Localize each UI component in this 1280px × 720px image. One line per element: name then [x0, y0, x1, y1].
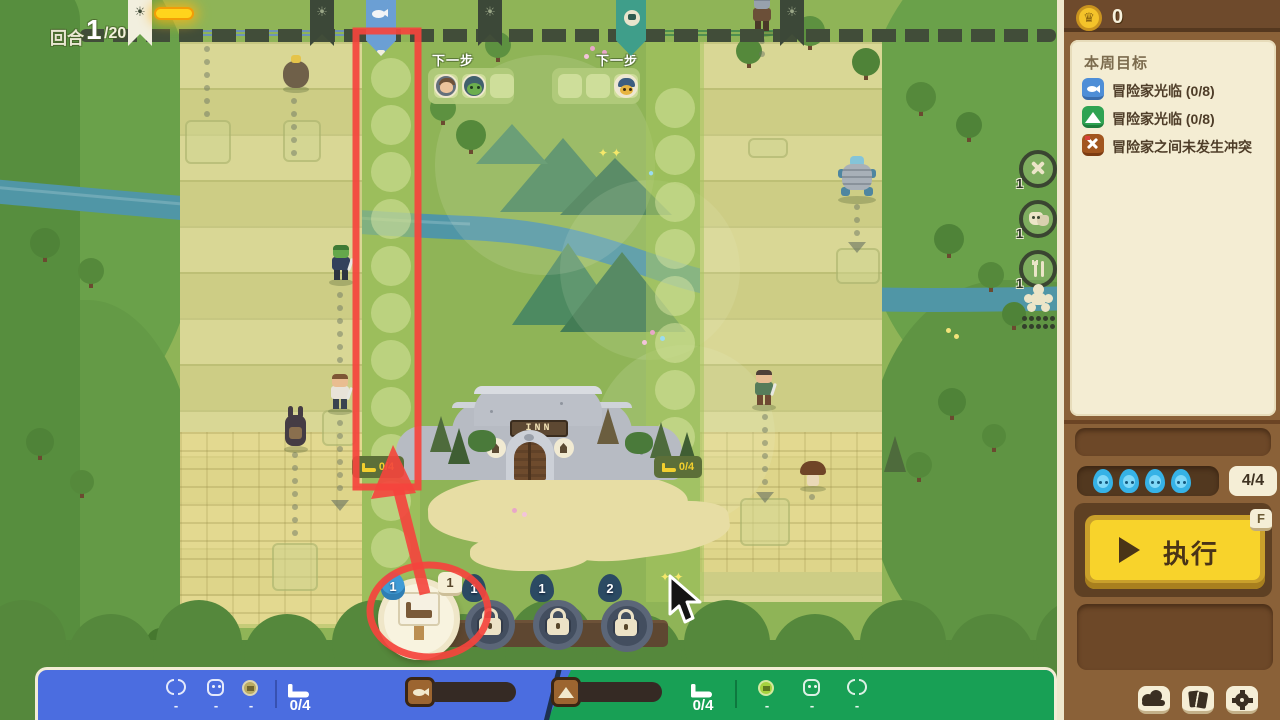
path-dot [292, 530, 298, 536]
turn-label: 回合 [50, 24, 84, 49]
path-arrow-icon [331, 500, 349, 511]
lock-icon [479, 618, 501, 635]
mountain-icon [558, 687, 574, 698]
goal-label: 冒险家光临 (0/8) [1112, 109, 1215, 129]
path-dot [337, 305, 343, 311]
path-dot [337, 331, 343, 337]
lane-cell[interactable] [371, 199, 411, 239]
inn-capacity-badge-left: 0/4 [352, 456, 404, 478]
path-dot [337, 420, 343, 426]
execute-label: 执行 [1163, 534, 1219, 571]
card-locked-3-cost: 2 [598, 574, 622, 602]
slot-tray-bottom [1077, 604, 1273, 670]
fish-tail-icon [382, 9, 388, 17]
medal-value-left: - [239, 698, 263, 713]
path-dot [854, 204, 860, 210]
inn-capacity-badge-right: 0/4 [654, 456, 702, 478]
cards-button[interactable] [1182, 686, 1214, 714]
game-screen: INN ✦ ✦ ● ✦ ✦ 0/4 0/4 下一步 [0, 0, 1280, 720]
path-dot [337, 292, 343, 298]
flower [650, 330, 655, 335]
goal-item: 冒险家光临 (0/8) [1082, 78, 1268, 102]
timeline-progress-pill [154, 7, 194, 20]
mushroom-guest [800, 461, 840, 507]
goals-title: 本周目标 [1084, 52, 1148, 73]
path-dot [291, 124, 297, 130]
tree-icon [906, 82, 936, 112]
grid-dot [1029, 324, 1034, 329]
path-dot [337, 459, 343, 465]
bush-icon [625, 432, 653, 454]
sparkle: ✦ ✦ [598, 146, 621, 160]
flame-icon [1093, 469, 1113, 493]
skull-value-right: - [800, 698, 824, 713]
play-icon [1119, 537, 1140, 563]
sparkle: ● [648, 168, 654, 179]
tree-icon [978, 262, 1004, 288]
queue-portrait-frog [462, 74, 486, 98]
path-dot [337, 433, 343, 439]
grid-dot [1029, 316, 1034, 321]
path-dot [291, 137, 297, 143]
flame-icon [1119, 469, 1139, 493]
laurel-value-right: - [845, 698, 869, 713]
path-arrow-icon [848, 242, 866, 253]
path-dot [854, 217, 860, 223]
path-dot [292, 491, 298, 497]
tree-icon [30, 228, 60, 258]
skull-value-left: - [204, 698, 228, 713]
queue-right-label: 下一步 [552, 50, 638, 69]
turtle-guest [838, 156, 878, 202]
lane-cell[interactable] [371, 246, 411, 286]
path-arrow-icon [756, 492, 774, 503]
grid-dot [1043, 324, 1048, 329]
sidebar: ♛ 0 本周目标 冒险家光临 (0/8) 冒险家光临 (0/8) [1057, 0, 1280, 720]
laurel-icon [166, 679, 174, 695]
lane-cell[interactable] [655, 182, 695, 222]
keyhole [624, 624, 628, 630]
tree-icon [982, 424, 1006, 448]
map: INN ✦ ✦ ● ✦ ✦ 0/4 0/4 下一步 [0, 0, 1063, 720]
path-dot [292, 517, 298, 523]
meeple-icon[interactable] [1024, 284, 1052, 312]
path-dot [292, 465, 298, 471]
keys-tool-button[interactable] [1019, 150, 1057, 188]
path-dot [291, 111, 297, 117]
hotkey-badge: F [1250, 509, 1272, 531]
bed-counter-left: 0/4 [281, 697, 319, 714]
queue-portrait-man [434, 74, 458, 98]
mountain-badge [551, 677, 581, 707]
path-dot [204, 72, 210, 78]
path-dot [762, 453, 768, 459]
tree-icon [852, 48, 880, 76]
tree-icon [934, 224, 964, 254]
owl-guest [283, 54, 323, 100]
lane-cell[interactable] [371, 387, 411, 427]
currency-value: 0 [1112, 6, 1123, 29]
flower [512, 508, 517, 513]
tree-icon [78, 258, 104, 284]
skull-icon [207, 679, 224, 696]
grid-dot [1022, 316, 1027, 321]
action-panel: 4/4 执行 F [1064, 420, 1280, 720]
utensils-icon [1034, 261, 1037, 277]
plaza-left [180, 432, 362, 628]
plot-square [740, 498, 790, 546]
goal-label: 冒险家之间未发生冲突 [1112, 137, 1252, 157]
card-bed-count-badge: 1 [438, 572, 462, 596]
bottom-status-bar: - - - 0/4 0/4 - [35, 667, 1057, 720]
utensils-tool-button[interactable] [1019, 250, 1057, 288]
inn-door [514, 442, 546, 480]
path-dot [337, 357, 343, 363]
plot-square [283, 120, 321, 162]
flower [946, 328, 951, 333]
laurel-value-left: - [164, 698, 188, 713]
mountain-shield-icon [1082, 106, 1104, 128]
grid-dot [1036, 316, 1041, 321]
path-dot [762, 427, 768, 433]
turn-value: 1 [86, 14, 102, 46]
lane-cell[interactable] [371, 105, 411, 145]
lane-cell[interactable] [371, 58, 411, 98]
decor-button[interactable] [1138, 686, 1170, 714]
path-dot [292, 478, 298, 484]
tree-icon [26, 428, 54, 456]
frog-adventurer [329, 243, 369, 289]
bed-icon-right [691, 680, 705, 698]
lane-cell[interactable] [371, 340, 411, 380]
queue-left-slot-3 [490, 74, 514, 98]
tree-icon [906, 452, 932, 478]
path-dot [337, 344, 343, 350]
path-dot [337, 318, 343, 324]
grid-dot [1036, 324, 1041, 329]
lane-cell[interactable] [655, 88, 695, 128]
masks-tool-count: 1 [1016, 226, 1023, 241]
bed-card-board [398, 592, 440, 626]
grid-dot [1022, 324, 1027, 329]
bush-icon [468, 430, 496, 452]
keyhole [488, 623, 492, 629]
path-dot [759, 51, 765, 57]
card-locked-1-cost: 1 [462, 574, 486, 602]
tree-icon [1002, 302, 1026, 326]
goals-panel: 本周目标 冒险家光临 (0/8) 冒险家光临 (0/8) [1070, 40, 1276, 416]
gear-icon [1235, 693, 1249, 707]
stat-divider [735, 680, 737, 708]
grid-dot [1050, 316, 1055, 321]
tree-icon [70, 470, 94, 494]
path-dot [337, 472, 343, 478]
lane-cell[interactable] [371, 481, 411, 521]
timeline-track [80, 29, 1056, 42]
flame-counter: 4/4 [1229, 466, 1277, 496]
slot-tray-top [1075, 428, 1271, 456]
path-dot [204, 98, 210, 104]
path-dot [762, 466, 768, 472]
path-dot [204, 46, 210, 52]
flame-tray [1077, 466, 1219, 496]
card-locked-2-cost: 1 [530, 574, 554, 602]
turn-total: /20 [104, 25, 126, 43]
mouse-cursor [667, 574, 707, 626]
rabbit-guest [284, 406, 324, 452]
lock-icon [547, 618, 569, 635]
grid-dot [1043, 316, 1048, 321]
bed-card-sign [414, 624, 424, 640]
goal-item: 冒险家光临 (0/8) [1082, 106, 1268, 130]
lane-cell[interactable] [655, 370, 695, 410]
keys-tool-count: 1 [1016, 176, 1023, 191]
path-dot [291, 150, 297, 156]
fish-progress-bar [432, 682, 516, 702]
fish-shield-icon [1082, 78, 1104, 100]
path-dot [337, 485, 343, 491]
path-dot [337, 446, 343, 452]
tree-icon [956, 112, 982, 138]
knife-adventurer [328, 372, 368, 418]
flame-icon [1145, 469, 1165, 493]
goal-item: 冒险家之间未发生冲突 [1082, 134, 1268, 158]
keyhole [556, 623, 560, 629]
lock-icon [615, 619, 637, 636]
plot-square [185, 120, 231, 164]
plot-square [272, 543, 318, 591]
path-dot [204, 85, 210, 91]
path-dot [854, 230, 860, 236]
skull-icon [803, 679, 820, 696]
cloak-adventurer [752, 368, 792, 414]
medal-value-right: - [755, 698, 779, 713]
plot-square [748, 138, 788, 158]
lane-cell[interactable] [371, 293, 411, 333]
lane-cell[interactable] [371, 152, 411, 192]
settings-button[interactable] [1226, 686, 1258, 714]
lane-cell[interactable] [371, 528, 411, 568]
queue-right-slot-1 [558, 74, 582, 98]
lane-cell[interactable] [655, 229, 695, 269]
queue-portrait-bee [614, 74, 638, 98]
grid-dot [1050, 324, 1055, 329]
conflict-shield-icon [1082, 134, 1104, 156]
path-dot [292, 504, 298, 510]
path-dot [204, 59, 210, 65]
bed-icon-left [288, 680, 302, 698]
utensils-tool-count: 1 [1016, 276, 1023, 291]
crown-coin-icon: ♛ [1076, 5, 1102, 31]
emblem-mark [628, 14, 636, 20]
tree-icon [938, 388, 966, 416]
execute-button[interactable]: 执行 [1085, 515, 1265, 589]
inn-yard-path2 [470, 535, 590, 571]
lane-cell[interactable] [655, 276, 695, 316]
queue-right-slot-2 [586, 74, 610, 98]
card-bed-cost-badge: 1 [381, 572, 405, 600]
stat-divider [275, 680, 277, 708]
mountain-progress-bar [578, 682, 662, 702]
goal-label: 冒险家光临 (0/8) [1112, 81, 1215, 101]
fish-badge [405, 677, 435, 707]
flame-icon [1171, 469, 1191, 493]
path-dot [762, 414, 768, 420]
plot-square [836, 248, 880, 284]
masks-tool-button[interactable] [1019, 200, 1057, 238]
path-dot [762, 479, 768, 485]
lane-cell[interactable] [655, 135, 695, 175]
lane-cell[interactable] [655, 323, 695, 363]
path-dot [762, 440, 768, 446]
bed-counter-right: 0/4 [684, 697, 722, 714]
queue-left-label: 下一步 [432, 50, 474, 69]
tree-icon [456, 120, 486, 150]
path-dot [204, 111, 210, 117]
